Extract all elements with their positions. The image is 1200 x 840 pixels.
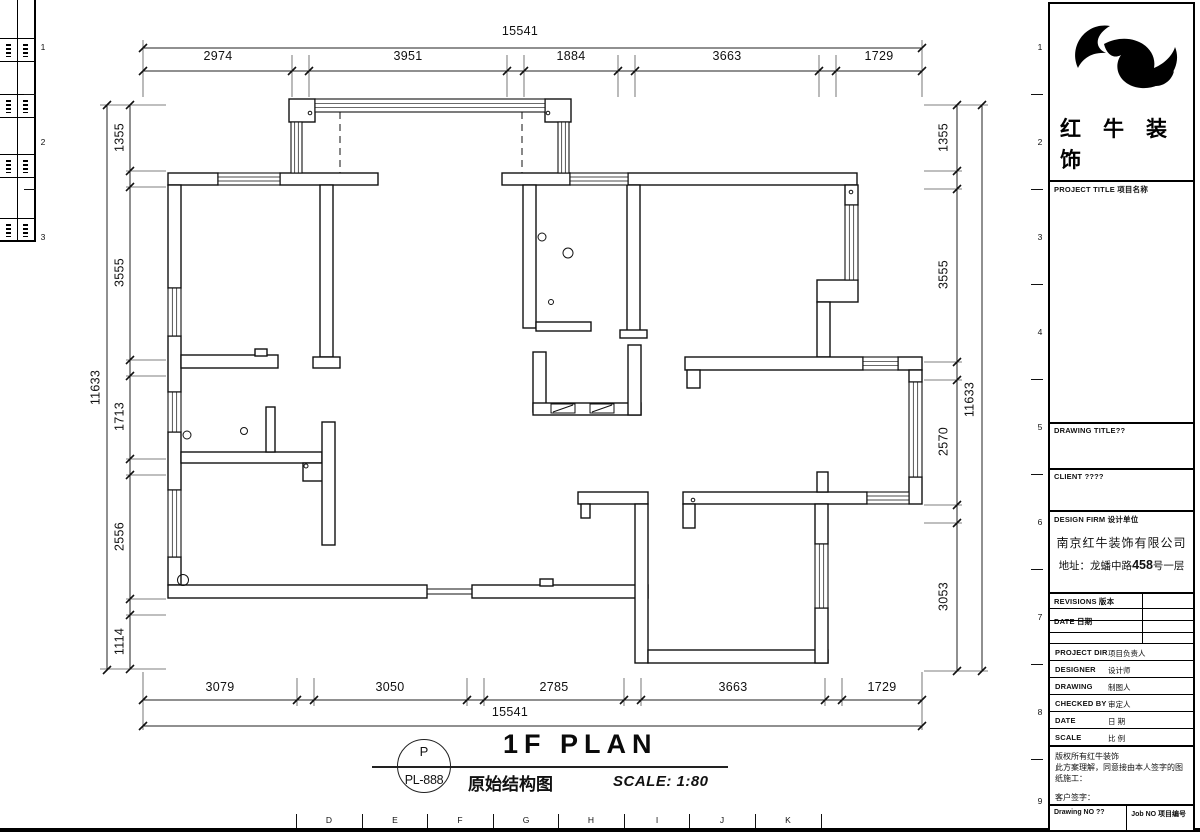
door-threshold [427,589,472,594]
row-checked-by: CHECKED BY审定人 [1050,694,1193,711]
dim-left-total: 11633 [89,356,104,420]
drawing-no-cell: Drawing NO ?? [1050,806,1127,832]
dim-top-seg-2: 1884 [539,49,603,64]
client-header: CLIENT ???? [1050,470,1193,483]
dim-bottom-seg-4: 1729 [850,680,914,695]
frame-letter-H: H [584,815,598,825]
design-firm-address: 地址：龙蟠中路458号一层 [1050,558,1193,573]
frame-right-number-3: 3 [1033,232,1047,242]
dim-top-seg-4: 1729 [847,49,911,64]
dim-bottom-seg-2: 2785 [522,680,586,695]
frame-letter-E: E [388,815,402,825]
plan-scale: SCALE: 1:80 [613,773,709,790]
brand-logo-icon [1064,16,1184,111]
dim-top-seg-0: 2974 [186,49,250,64]
frame-letter-F: F [453,815,467,825]
bubble-code: PL-888 [398,773,450,787]
dim-right-seg-3: 3053 [937,565,952,629]
frame-letter-D: D [322,815,336,825]
job-no-cell: Job NO 项目编号 [1127,806,1193,832]
project-title-header: PROJECT TITLE 项目名称 [1050,182,1193,197]
frame-right-number-1: 1 [1033,42,1047,52]
row-designer: DESIGNER设计师 [1050,660,1193,677]
dim-bottom-total: 15541 [478,705,542,720]
frame-letter-G: G [519,815,533,825]
design-firm-header: DESIGN FIRM 设计单位 [1050,512,1193,527]
frame-right-number-4: 4 [1033,327,1047,337]
brand-name: 红牛装饰 [1060,114,1192,176]
dim-left-seg-0: 1355 [113,106,128,170]
dashed-openings [340,112,522,173]
frame-letter-K: K [781,815,795,825]
sign-off-strip [0,0,36,242]
frame-right-number-9: 9 [1033,796,1047,806]
frame-right-number-6: 6 [1033,517,1047,527]
plan-subtitle: 原始结构图 [468,770,553,795]
drawing-sheet: 15541 2974 3951 1884 3663 1729 3079 3050… [0,0,1200,840]
frame-letter-I: I [650,815,664,825]
dim-top-seg-3: 3663 [695,49,759,64]
row-project-dir: PROJECT DIR项目负责人 [1050,643,1193,660]
row-drawing: DRAWING制图人 [1050,677,1193,694]
sheet-bottom-border [0,828,1200,832]
dim-bottom-seg-3: 3663 [701,680,765,695]
frame-left-number-3: 3 [36,232,50,242]
dim-bottom-seg-0: 3079 [188,680,252,695]
title-underline [372,766,728,768]
dim-right-seg-1: 3555 [937,243,952,307]
bubble-letter: P [398,744,450,759]
frame-right-number-5: 5 [1033,422,1047,432]
dim-top-total: 15541 [488,24,552,39]
plan-heading: 1F PLAN [503,729,658,760]
row-date: DATE日 期 [1050,711,1193,728]
drawing-title-header: DRAWING TITLE?? [1050,424,1193,437]
title-block: 红牛装饰 PROJECT TITLE 项目名称 DRAWING TITLE?? … [1048,2,1195,832]
frame-right-number-2: 2 [1033,137,1047,147]
dim-left-seg-1: 3555 [113,241,128,305]
design-firm-company: 南京红牛装饰有限公司 [1050,534,1193,551]
revisions-header: REVISIONS 版本 [1050,594,1144,609]
dim-right-seg-2: 2570 [937,410,952,474]
dim-top-seg-1: 3951 [376,49,440,64]
frame-right-number-8: 8 [1033,707,1047,717]
dim-right-seg-0: 1355 [937,106,952,170]
frame-right-number-7: 7 [1033,612,1047,622]
frame-letter-J: J [715,815,729,825]
row-scale: SCALE比 例 [1050,728,1193,745]
frame-left-number-1: 1 [36,42,50,52]
frame-left-number-2: 2 [36,137,50,147]
dim-bottom-seg-1: 3050 [358,680,422,695]
dim-right-total: 11633 [963,368,978,432]
dim-left-seg-3: 2556 [113,505,128,569]
dim-left-seg-4: 1114 [113,610,128,674]
copyright-notes: 版权所有红牛装饰 此方案理解，同意接由本人签字的图纸施工： 客户签字： [1050,747,1193,807]
dim-left-seg-2: 1713 [113,385,128,449]
walls [168,99,922,663]
